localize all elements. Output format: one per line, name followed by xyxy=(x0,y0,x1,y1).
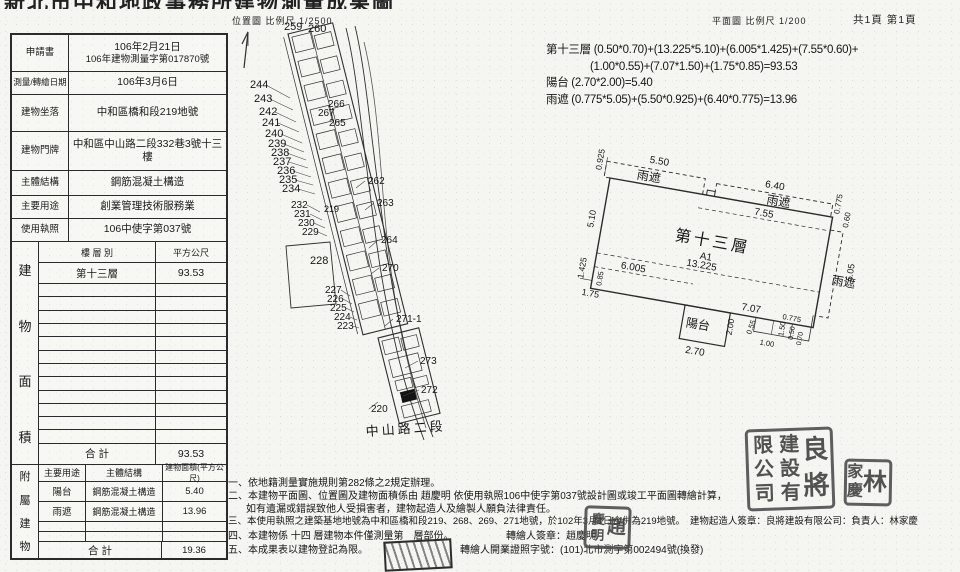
row-value: 106中使字第037號 xyxy=(69,219,226,241)
empty-row xyxy=(39,417,226,430)
table-row: 建物門牌中和區中山路二段332巷3號十三樓 xyxy=(12,132,226,171)
leader-line xyxy=(365,203,374,210)
area-formulas: 第十三層 (0.50*0.70)+(13.225*5.10)+(6.005*1.… xyxy=(546,42,958,109)
building-cell xyxy=(344,153,364,171)
empty-cell xyxy=(156,351,226,363)
col-header-floor: 樓 層 別 xyxy=(39,242,156,262)
empty-cell xyxy=(39,364,156,376)
total-label-cell: 合 計 xyxy=(39,444,156,464)
empty-cell xyxy=(39,284,156,296)
total-row: 合 計19.36 xyxy=(39,542,226,558)
empty-cell xyxy=(39,430,156,442)
seal-column: 家慶 xyxy=(847,464,864,501)
page-count-label: 共1頁 第1頁 xyxy=(853,12,917,27)
empty-cell xyxy=(86,532,163,541)
map-label: 219 xyxy=(324,204,339,214)
building-cell xyxy=(340,227,362,247)
table-header-row: 主要用途主體結構建物面積(平方公尺) xyxy=(39,465,226,482)
leader-line xyxy=(356,181,365,188)
map-label: 228 xyxy=(310,255,328,267)
floor-plan-scale-label: 平面圖 比例尺 1/200 xyxy=(712,14,807,27)
side-char: 建 xyxy=(20,515,31,531)
seal-column: 建設有 xyxy=(776,433,804,506)
map-label: 272 xyxy=(421,385,438,396)
north-arrow-icon xyxy=(242,32,248,68)
empty-cell xyxy=(156,324,226,336)
plan-label: 6.005 xyxy=(620,260,647,275)
seal-column: 林 xyxy=(863,464,888,501)
plan-label: 7.07 xyxy=(741,302,763,316)
total-label-cell: 合 計 xyxy=(39,542,162,558)
empty-row xyxy=(39,324,226,337)
table-row: 申請書106年2月21日106年建物測量字第017870號 xyxy=(12,35,226,72)
map-label: 220 xyxy=(371,404,388,415)
formula-line: (1.00*0.55)+(7.07*1.50)+(1.75*0.85)=93.5… xyxy=(546,59,958,76)
map-label: 223 xyxy=(337,321,354,332)
use-cell: 雨遮 xyxy=(39,502,86,521)
leader-line xyxy=(371,268,379,274)
building-area-section: 建物面積 樓 層 別平方公尺第十三層93.53合 計93.53 xyxy=(12,242,226,465)
empty-cell xyxy=(39,324,156,336)
plan-label: 2.00 xyxy=(724,318,737,336)
plan-label: 陽台 xyxy=(685,315,711,334)
table-row: 建物坐落中和區橋和段219地號 xyxy=(12,95,226,132)
building-cell xyxy=(298,57,320,77)
row-value: 中和區橋和段219地號 xyxy=(69,95,226,131)
empty-cell xyxy=(39,532,86,541)
seal-char: 家 xyxy=(847,465,863,481)
empty-cell xyxy=(156,404,226,416)
subject-unit-a1-marker xyxy=(400,389,417,403)
row-label: 主要用途 xyxy=(12,196,69,218)
plan-label: 5.10 xyxy=(585,209,598,228)
empty-cell xyxy=(156,377,226,389)
seal-char: 將 xyxy=(803,473,830,500)
empty-cell xyxy=(156,284,226,296)
note-line: 轉繪人開業證照字號：(101)北市測字第002494號(換發) xyxy=(460,541,703,556)
empty-row xyxy=(39,364,226,377)
seal-column: 限公司 xyxy=(750,433,778,506)
plan-label: 1.00 xyxy=(759,338,775,349)
empty-cell xyxy=(156,297,226,309)
empty-row xyxy=(39,337,226,350)
table-row: 主體結構鋼筋混凝土構造 xyxy=(12,171,226,196)
plan-label: 0.85 xyxy=(594,270,605,286)
table-row: 主要用途創業管理技術服務業 xyxy=(12,196,226,219)
empty-row xyxy=(39,532,226,542)
row-value: 中和區中山路二段332巷3號十三樓 xyxy=(69,132,226,170)
clipped-stamp xyxy=(383,538,452,572)
empty-row xyxy=(39,311,226,324)
building-cell xyxy=(304,81,326,101)
empty-cell xyxy=(39,337,156,349)
empty-row xyxy=(39,522,226,532)
map-label: 273 xyxy=(420,356,437,367)
building-cell xyxy=(322,154,344,174)
table-row: 測量/轉繪日期106年3月6日 xyxy=(12,72,226,95)
building-cell xyxy=(363,226,383,244)
building-cell xyxy=(346,251,368,271)
row-value: 106年2月21日106年建物測量字第017870號 xyxy=(69,35,226,71)
map-label: 260 xyxy=(308,23,326,35)
plan-label: 0.60 xyxy=(841,211,853,228)
empty-cell xyxy=(39,391,156,403)
building-cell xyxy=(326,80,346,98)
building-area-side-label: 建物面積 xyxy=(12,242,39,464)
plan-label: 1.50 xyxy=(776,321,787,337)
plan-label: 0.925 xyxy=(593,148,607,171)
empty-cell xyxy=(156,430,226,442)
value-line: 鋼筋混凝土構造 xyxy=(111,176,185,189)
plan-label: 6.40 xyxy=(764,179,786,193)
formula-line: 第十三層 (0.50*0.70)+(13.225*5.10)+(6.005*1.… xyxy=(546,42,958,59)
annex-table: 主要用途主體結構建物面積(平方公尺)陽台鋼筋混凝土構造5.40雨遮鋼筋混凝土構造… xyxy=(39,465,226,558)
building-cell xyxy=(320,56,340,74)
area-cell: 5.40 xyxy=(163,482,226,501)
row-label: 使用執照 xyxy=(12,219,69,241)
empty-cell xyxy=(156,417,226,429)
value-line: 中和區中山路二段332巷3號十三樓 xyxy=(69,138,226,164)
plan-label: 1.75 xyxy=(581,287,600,300)
empty-row xyxy=(39,297,226,310)
total-value-cell: 93.53 xyxy=(156,444,226,464)
seal-char: 公 xyxy=(754,460,775,481)
seal-column: 慶明 xyxy=(588,510,607,544)
info-rows: 申請書106年2月21日106年建物測量字第017870號測量/轉繪日期106年… xyxy=(12,35,226,242)
side-char: 面 xyxy=(18,371,31,390)
survey-result-sheet: 新北市中和地政事務所建物測量成果圖 位置圖 比例尺 1/2500 平面圖 比例尺… xyxy=(0,0,960,568)
map-label: 243 xyxy=(254,93,272,105)
building-cell xyxy=(292,33,314,53)
empty-row xyxy=(39,404,226,417)
table-row: 使用執照106中使字第037號 xyxy=(12,219,226,242)
value-line: 創業管理技術服務業 xyxy=(100,200,195,213)
formula-line: 陽台 (2.70*2.00)=5.40 xyxy=(546,75,958,92)
plan-label: 0.55 xyxy=(744,319,757,336)
map-label: 244 xyxy=(250,79,268,91)
drafter-seal: 趙慶明 xyxy=(583,505,631,550)
building-strip xyxy=(283,23,407,336)
total-value-cell: 19.36 xyxy=(162,542,226,558)
empty-cell xyxy=(156,337,226,349)
seal-char: 有 xyxy=(780,483,801,504)
structure-cell: 鋼筋混凝土構造 xyxy=(86,482,163,501)
row-value: 創業管理技術服務業 xyxy=(69,196,226,218)
side-char: 附 xyxy=(20,468,31,484)
seal-char: 趙 xyxy=(607,518,627,538)
seal-char: 建 xyxy=(779,435,800,456)
seal-char: 設 xyxy=(780,459,801,480)
building-cell xyxy=(352,275,374,295)
seal-char: 林 xyxy=(863,470,887,494)
side-char: 建 xyxy=(18,260,31,279)
total-row: 合 計93.53 xyxy=(39,444,226,464)
map-label: 262 xyxy=(368,176,385,187)
empty-cell xyxy=(39,417,156,429)
empty-cell xyxy=(86,522,163,531)
empty-row xyxy=(39,377,226,390)
value-line: 106中使字第037號 xyxy=(104,223,192,236)
seal-column: 趙 xyxy=(606,511,626,545)
seal-char: 慶 xyxy=(847,483,863,499)
note-line: 五、本成果表以建物登記為限。 xyxy=(228,541,368,556)
map-label: A1 xyxy=(394,394,402,401)
note-line: 轉繪人簽章：趙慶明 xyxy=(506,527,596,542)
structure-cell: 鋼筋混凝土構造 xyxy=(86,502,163,521)
map-label: 中山路二段 xyxy=(365,418,446,439)
annex-side-label: 附屬建物 xyxy=(12,465,39,558)
floor-cell: 第十三層 xyxy=(39,263,156,283)
note-line: 三、本使用執照之建築基地地號為中和區橋和段219、268、269、271地號，於… xyxy=(228,513,918,527)
empty-cell xyxy=(39,404,156,416)
empty-cell xyxy=(39,297,156,309)
empty-cell xyxy=(156,364,226,376)
table-header-row: 樓 層 別平方公尺 xyxy=(39,242,226,263)
map-label: 234 xyxy=(282,183,300,195)
empty-cell xyxy=(156,311,226,323)
col-header-sqm: 平方公尺 xyxy=(156,242,226,262)
plan-label: 5.50 xyxy=(649,155,671,169)
plan-label: 0.70 xyxy=(796,331,805,346)
seal-char: 慶 xyxy=(592,512,605,525)
side-char: 屬 xyxy=(20,492,31,508)
map-label: 270 xyxy=(382,263,399,274)
value-line2: 106年建物測量字第017870號 xyxy=(86,54,210,66)
row-label: 建物門牌 xyxy=(12,132,69,170)
area-cell: 93.53 xyxy=(156,263,226,283)
building-info-table: 申請書106年2月21日106年建物測量字第017870號測量/轉繪日期106年… xyxy=(10,33,228,560)
seal-char: 明 xyxy=(591,529,604,542)
map-label: 271-1 xyxy=(396,314,422,325)
row-label: 申請書 xyxy=(12,35,69,71)
area-cell: 13.96 xyxy=(163,502,226,521)
side-char: 物 xyxy=(20,538,31,554)
company-seal: 良將建設有限公司 xyxy=(745,426,836,511)
empty-cell xyxy=(156,391,226,403)
side-char: 物 xyxy=(18,316,31,335)
empty-cell xyxy=(39,377,156,389)
site-map-figure: 2592602442432422412402392382372362352342… xyxy=(228,8,528,468)
col-header-area: 建物面積(平方公尺) xyxy=(163,465,226,481)
empty-row xyxy=(39,351,226,364)
leader-line xyxy=(298,189,315,194)
empty-cell xyxy=(163,522,226,531)
row-value: 106年3月6日 xyxy=(69,72,226,94)
value-line: 106年3月6日 xyxy=(117,76,178,89)
empty-cell xyxy=(39,311,156,323)
value-line: 106年2月21日 xyxy=(114,41,181,54)
map-label: 264 xyxy=(381,235,398,246)
empty-row xyxy=(39,430,226,443)
leader-line xyxy=(318,232,327,236)
annex-section: 附屬建物 主要用途主體結構建物面積(平方公尺)陽台鋼筋混凝土構造5.40雨遮鋼筋… xyxy=(12,465,226,558)
map-label: 265 xyxy=(329,118,346,129)
map-label: 263 xyxy=(377,198,394,209)
table-row: 雨遮鋼筋混凝土構造13.96 xyxy=(39,502,226,522)
building-cell xyxy=(358,299,380,319)
person-seal: 林家慶 xyxy=(844,459,893,507)
col-header-structure: 主體結構 xyxy=(86,465,163,481)
plan-label: 1.425 xyxy=(575,256,589,279)
seal-char: 良 xyxy=(802,437,829,464)
building-cell xyxy=(328,178,350,198)
col-header-use: 主要用途 xyxy=(39,465,86,481)
plan-label: 2.70 xyxy=(684,345,706,359)
plan-label: 7.55 xyxy=(753,207,775,221)
table-row: 第十三層93.53 xyxy=(39,263,226,284)
empty-cell xyxy=(163,532,226,541)
seal-column: 良將 xyxy=(802,432,831,505)
formula-line: 雨遮 (0.775*5.05)+(5.50*0.925)+(6.40*0.775… xyxy=(546,92,958,109)
floor-plan-figure: 0.9255.50雨遮6.40雨遮7.550.7750.605.101.425第… xyxy=(548,132,878,372)
building-area-table: 樓 層 別平方公尺第十三層93.53合 計93.53 xyxy=(39,242,226,464)
leader-line xyxy=(385,319,393,326)
table-row: 陽台鋼筋混凝土構造5.40 xyxy=(39,482,226,502)
plan-label: 雨遮 xyxy=(765,192,791,211)
row-label: 主體結構 xyxy=(12,171,69,195)
empty-row xyxy=(39,391,226,404)
side-char: 積 xyxy=(18,427,31,446)
empty-cell xyxy=(39,351,156,363)
empty-row xyxy=(39,284,226,297)
seal-char: 司 xyxy=(754,484,775,505)
row-value: 鋼筋混凝土構造 xyxy=(69,171,226,195)
leader-line xyxy=(405,361,418,368)
row-label: 建物坐落 xyxy=(12,95,69,131)
use-cell: 陽台 xyxy=(39,482,86,501)
map-label: 229 xyxy=(302,227,319,238)
building-cell xyxy=(316,130,338,150)
seal-char: 限 xyxy=(753,436,774,457)
value-line: 中和區橋和段219地號 xyxy=(97,106,199,119)
map-label: 259 xyxy=(284,21,302,33)
building-cell xyxy=(338,129,358,147)
row-label: 測量/轉繪日期 xyxy=(12,72,69,94)
empty-cell xyxy=(39,522,86,531)
